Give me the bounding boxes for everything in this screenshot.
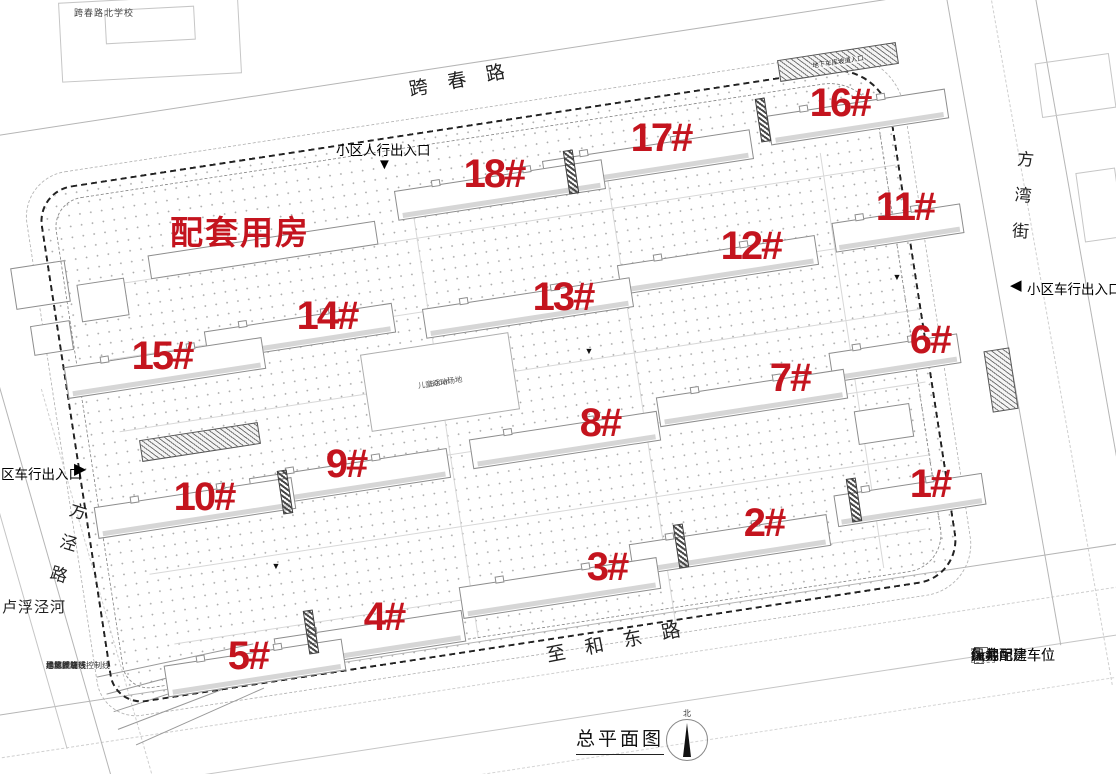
building-label: 12# (721, 226, 782, 266)
river-label: 卢浮泾河 (2, 596, 66, 617)
building-label: 9# (326, 444, 367, 484)
building-label: 14# (297, 296, 358, 336)
vehicle-entrance-right-label: 小区车行出入口 (1027, 278, 1116, 298)
entrance-triangle-right-icon: ▶ (74, 459, 86, 479)
boundary-legend-label: 绿化缓冲带控制线 (46, 659, 110, 674)
building-label: 10# (174, 477, 235, 517)
school-label: 跨春路北学校 (74, 6, 134, 19)
playground-area-value: 500㎡ (429, 376, 450, 388)
building-label: 11# (876, 187, 935, 227)
garage-ramp (983, 347, 1018, 412)
building-label: 18# (464, 154, 525, 194)
building-label: 16# (810, 83, 871, 123)
page-title: 总平面图 (576, 724, 664, 755)
direction-triangle-icon: ▼ (272, 561, 281, 571)
vehicle-entrance-left-label: 区车行出入口 (1, 463, 82, 483)
road-label-fangwan: 方湾街 (1004, 149, 1036, 258)
building-label: 17# (631, 118, 692, 158)
entrance-triangle-down-icon: ▼ (377, 156, 392, 173)
legend-item-vent-shaft: 风井 (971, 645, 993, 665)
neighbor-building-outline (1075, 168, 1116, 243)
supporting-house-label: 配套用房 (170, 206, 310, 254)
building-label: 6# (910, 320, 951, 360)
north-arrow: 北 (666, 719, 708, 761)
legend-label: 风井 (971, 645, 999, 665)
building-label: 2# (744, 503, 785, 543)
direction-triangle-icon: ▼ (585, 346, 594, 356)
road-label-kuachun: 跨春路 (406, 53, 526, 102)
building-label: 1# (910, 464, 951, 504)
building-label: 7# (770, 358, 811, 398)
garage-ramp-label: 地下车库坡道入口 (812, 55, 864, 70)
building-label: 4# (364, 597, 405, 637)
neighbor-building-outline (1034, 53, 1116, 118)
direction-triangle-icon: ▼ (893, 272, 902, 282)
building-label: 8# (580, 403, 621, 443)
building-label: 13# (533, 277, 594, 317)
north-arrow-needle (683, 723, 691, 757)
building-label: 3# (587, 547, 628, 587)
north-label: 北 (683, 708, 691, 719)
building-label: 15# (132, 336, 193, 376)
site-plan-canvas: 跨春路北学校 儿童活动场地 500㎡ 跨春路 至和东路 方湾街 方泾路 卢浮泾河… (0, 0, 1116, 774)
entrance-triangle-left-icon: ◀ (1010, 276, 1022, 294)
building-label: 5# (228, 636, 269, 676)
